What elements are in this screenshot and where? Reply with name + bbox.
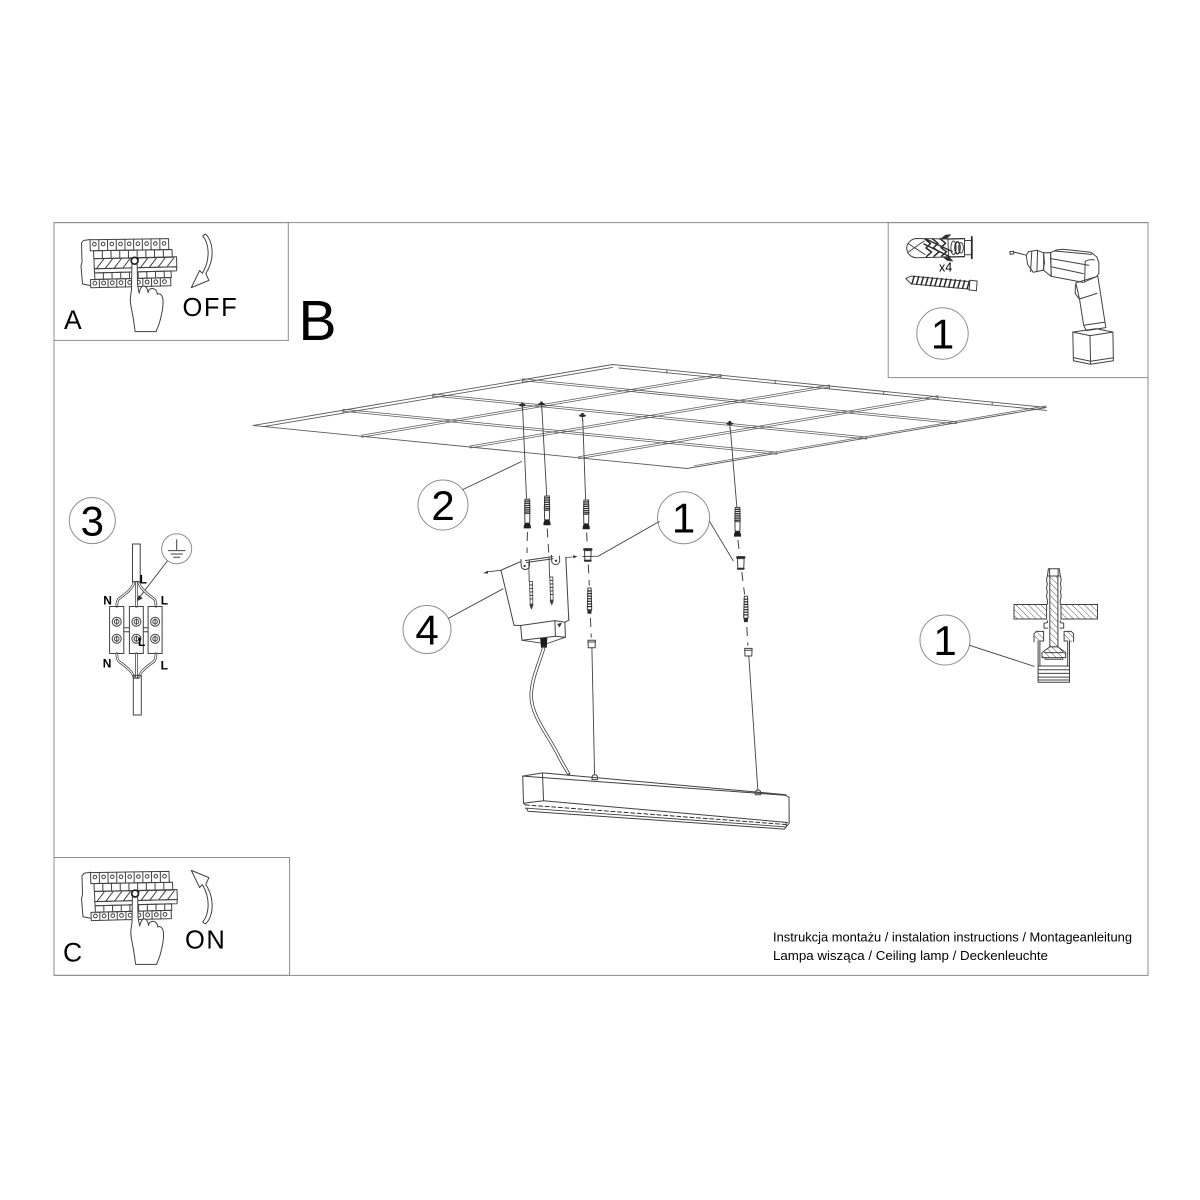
svg-text:N: N [103,657,112,671]
svg-text:C: C [63,938,82,968]
svg-text:2: 2 [431,482,454,529]
svg-text:Lampa wisząca / Ceiling lamp /: Lampa wisząca / Ceiling lamp / Deckenleu… [773,948,1048,963]
svg-text:L: L [140,573,147,587]
svg-text:L: L [138,635,145,649]
svg-text:Instrukcja montażu / instalati: Instrukcja montażu / instalation instruc… [773,930,1132,945]
svg-text:x4: x4 [939,261,952,275]
svg-text:B: B [299,289,337,353]
svg-text:4: 4 [415,607,438,654]
svg-text:1: 1 [931,311,954,358]
svg-text:L: L [161,594,168,608]
svg-text:N: N [103,594,112,608]
svg-text:A: A [64,305,82,335]
svg-text:1: 1 [933,617,956,664]
svg-text:1: 1 [672,495,695,542]
svg-text:OFF: OFF [183,294,239,322]
svg-text:L: L [161,659,168,673]
svg-text:ON: ON [185,927,226,955]
svg-text:3: 3 [81,498,104,545]
